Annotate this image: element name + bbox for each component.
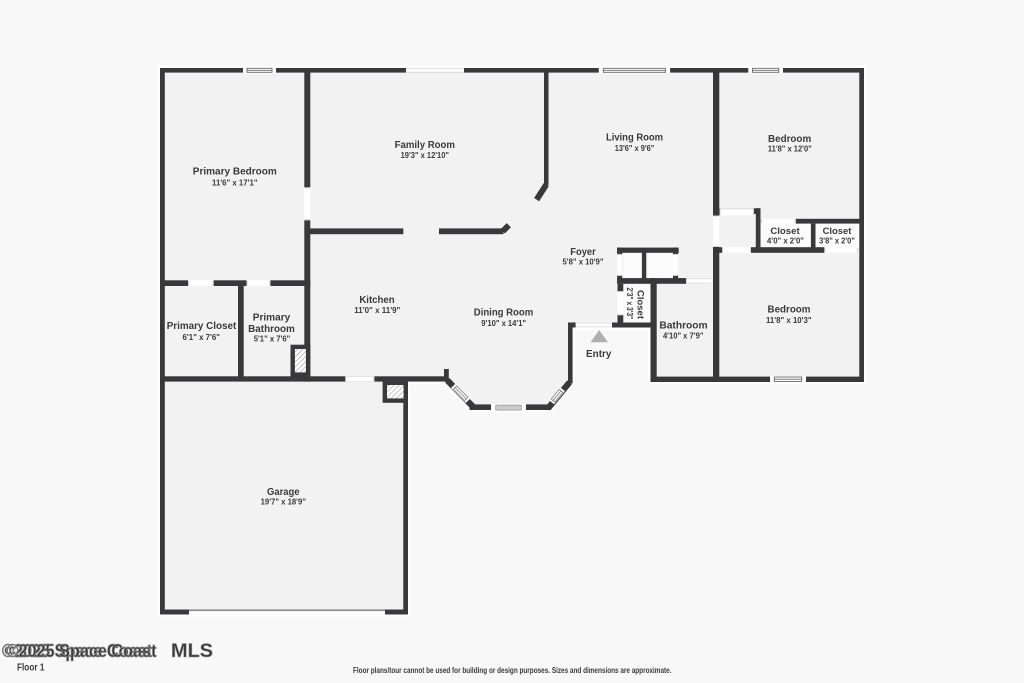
- svg-text:MLS: MLS: [171, 640, 213, 662]
- svg-text:6'1" x 7'6": 6'1" x 7'6": [183, 332, 221, 342]
- svg-text:5'8" x 10'9": 5'8" x 10'9": [563, 256, 604, 266]
- svg-text:4'0" x 2'0": 4'0" x 2'0": [767, 237, 804, 246]
- svg-text:Primary Closet: Primary Closet: [167, 321, 237, 332]
- svg-text:11'0" x 11'9": 11'0" x 11'9": [354, 305, 400, 315]
- svg-text:11'6" x 17'1": 11'6" x 17'1": [212, 178, 258, 188]
- svg-text:Entry: Entry: [586, 349, 612, 360]
- svg-text:Closet: Closet: [823, 226, 852, 237]
- svg-text:5'1" x 7'6": 5'1" x 7'6": [254, 334, 291, 344]
- svg-text:Dining Room: Dining Room: [474, 307, 533, 318]
- svg-text:3'8" x 2'0": 3'8" x 2'0": [819, 237, 855, 246]
- svg-text:Living Room: Living Room: [606, 133, 663, 144]
- svg-text:19'3" x 12'10": 19'3" x 12'10": [401, 150, 449, 160]
- svg-text:Closet: Closet: [635, 290, 646, 320]
- svg-text:©2025 Space Coast: ©2025 Space Coast: [7, 640, 158, 661]
- svg-text:Primary Bedroom: Primary Bedroom: [193, 167, 277, 178]
- svg-text:11'8" x 10'3": 11'8" x 10'3": [766, 315, 812, 325]
- svg-text:Floor 1: Floor 1: [17, 662, 45, 673]
- svg-text:Closet: Closet: [770, 226, 800, 237]
- svg-text:13'6" x 9'6": 13'6" x 9'6": [615, 143, 655, 153]
- svg-text:19'7" x 18'9": 19'7" x 18'9": [261, 497, 306, 507]
- svg-text:4'10" x 7'9": 4'10" x 7'9": [663, 331, 704, 341]
- svg-text:2'3" x 3'3": 2'3" x 3'3": [625, 287, 634, 319]
- svg-text:Primary: Primary: [253, 313, 291, 324]
- svg-text:11'8" x 12'0": 11'8" x 12'0": [768, 143, 812, 153]
- svg-text:Bedroom: Bedroom: [768, 305, 811, 316]
- svg-text:9'10" x 14'1": 9'10" x 14'1": [481, 318, 526, 328]
- svg-text:Floor plans/tour cannot be use: Floor plans/tour cannot be used for buil…: [353, 666, 672, 675]
